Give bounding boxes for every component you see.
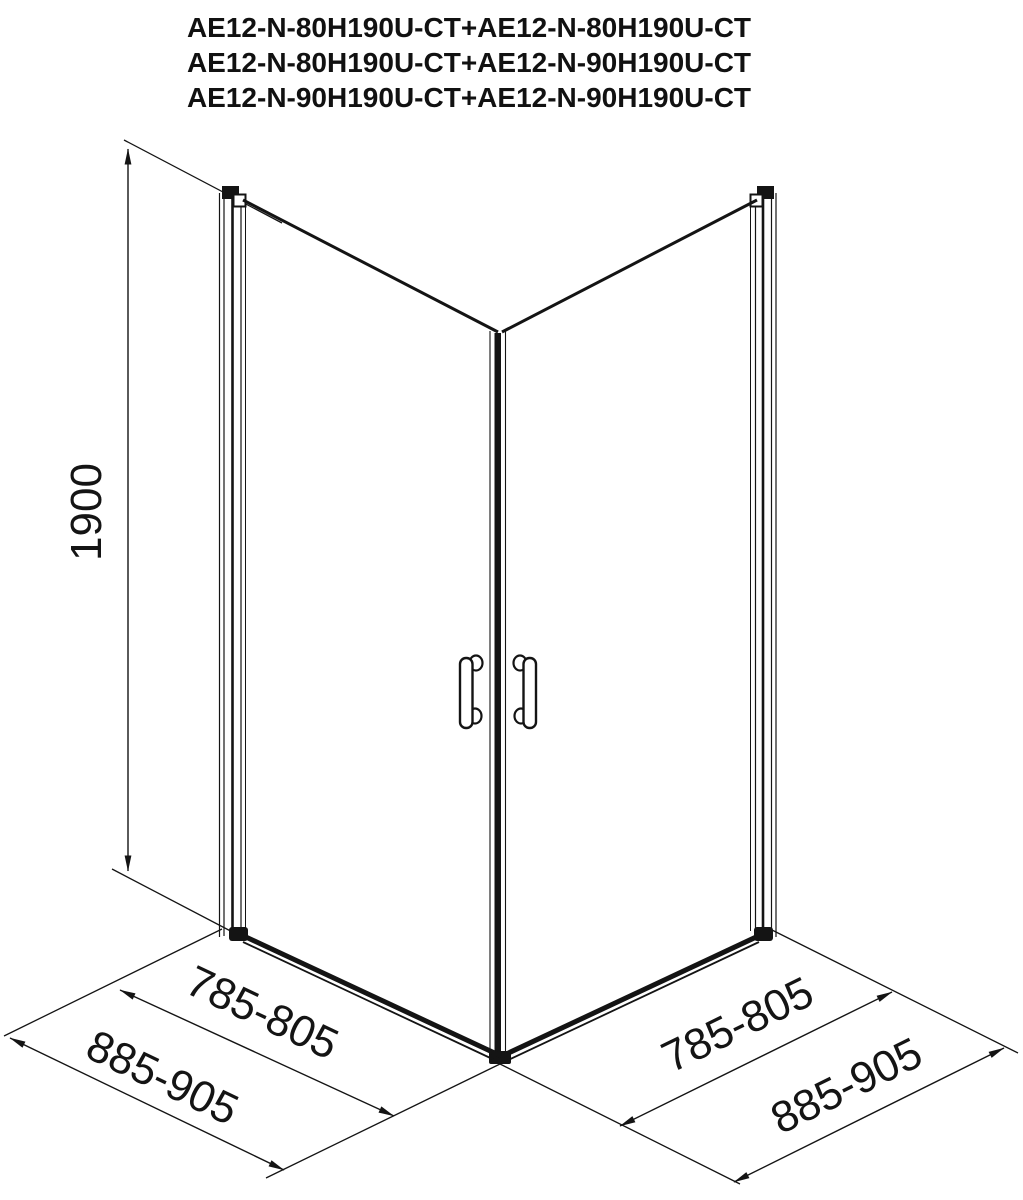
handle-bar	[524, 658, 537, 728]
bottom-bracket	[229, 927, 248, 941]
height-dimension: 1900	[62, 140, 282, 937]
left-overall-width-value: 885-905	[79, 1021, 246, 1135]
handle-bar	[460, 658, 473, 728]
left-door-handle	[460, 656, 483, 729]
enclosure-drawing: 1900	[0, 0, 1023, 1200]
right-door-handle	[514, 656, 537, 729]
height-extension-top	[124, 140, 282, 223]
bottom-bracket	[754, 927, 773, 941]
corner-post-bar	[495, 333, 502, 1055]
left-door-top-edge	[243, 200, 498, 332]
left-wall-profile	[220, 186, 246, 937]
height-value: 1900	[62, 463, 111, 561]
right-door-width-value: 785-805	[654, 968, 821, 1083]
extension-line	[266, 1064, 500, 1178]
page: AE12-N-80H190U-CT+AE12-N-80H190U-CT AE12…	[0, 0, 1023, 1200]
left-width-dimensions: 785-805 885-905	[4, 929, 500, 1178]
extension-line	[500, 1064, 740, 1184]
right-width-dimensions: 785-805 885-905	[500, 930, 1018, 1184]
right-wall-profile	[751, 186, 777, 937]
height-extension-bottom	[112, 869, 242, 937]
right-door-top-edge	[502, 200, 757, 332]
corner-post	[489, 331, 511, 1064]
